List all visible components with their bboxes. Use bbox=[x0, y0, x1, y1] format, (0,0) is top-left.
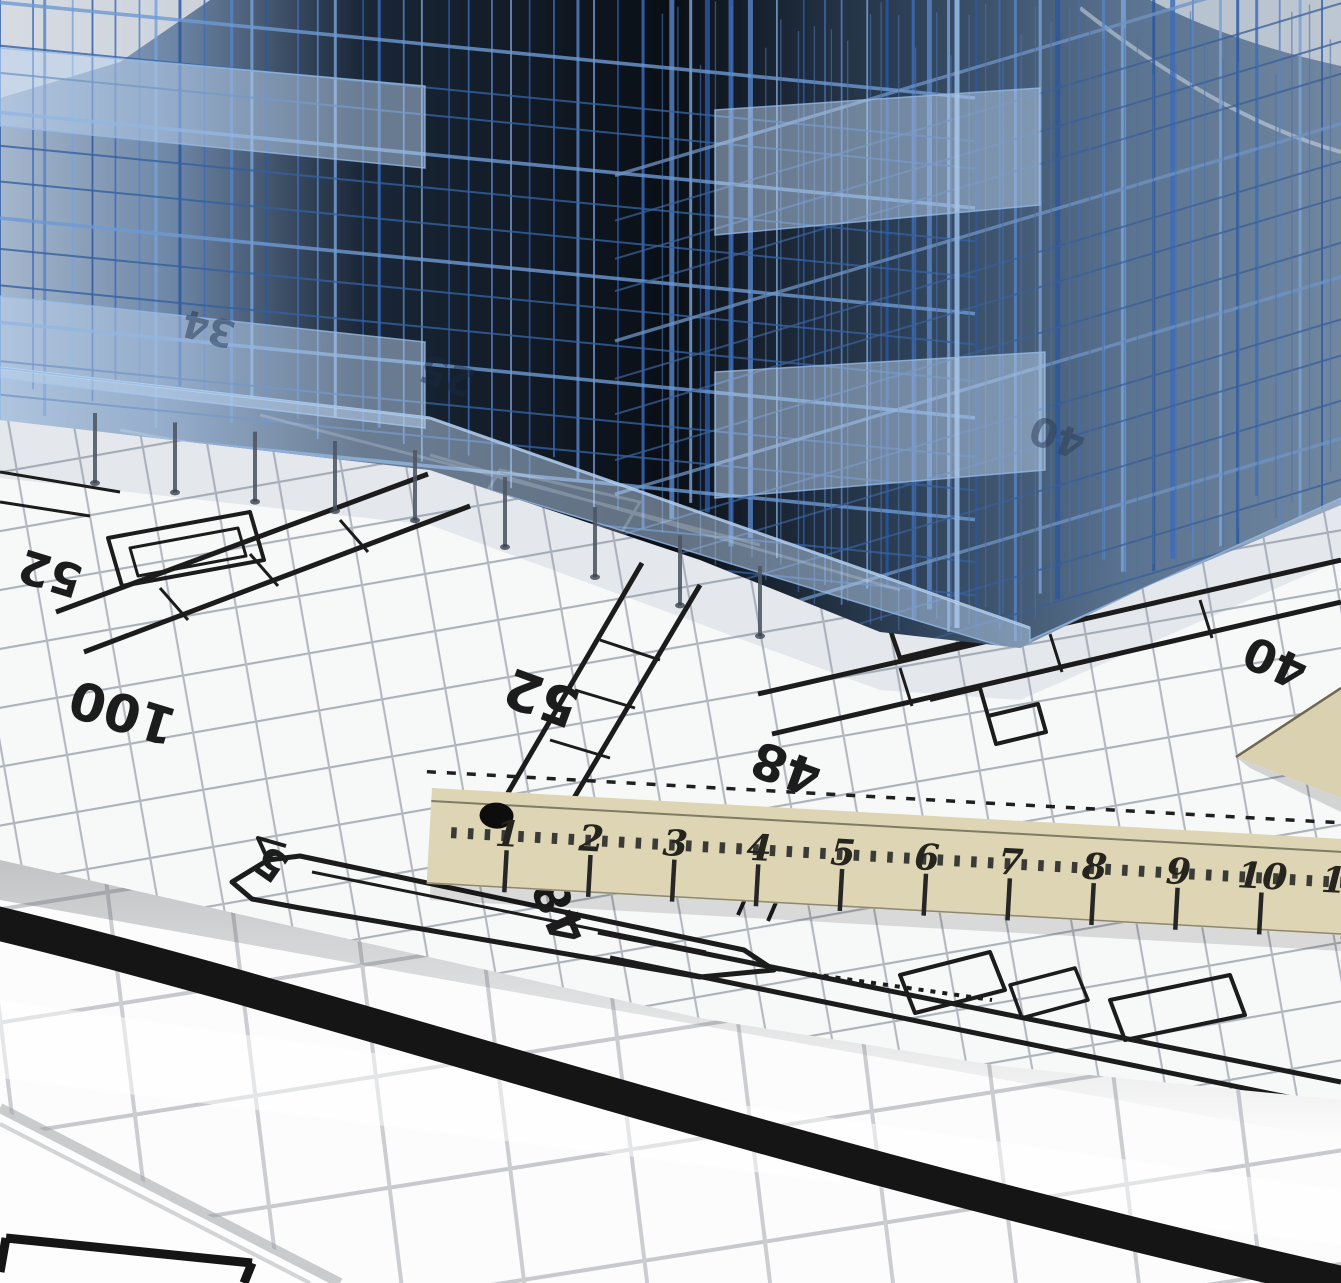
column-foot bbox=[590, 574, 600, 580]
column-foot bbox=[675, 602, 685, 608]
ruler-number: 2 bbox=[577, 817, 605, 860]
ruler-number: 9 bbox=[1165, 850, 1192, 893]
ruler-number: 6 bbox=[913, 836, 940, 879]
architectural-blueprint-scene: 52 100 52 48 40 5 48 bbox=[0, 0, 1341, 1283]
column-foot bbox=[755, 633, 765, 639]
column-foot bbox=[250, 499, 260, 505]
ruler-number: 5 bbox=[829, 831, 856, 874]
ruler-number: 11 bbox=[1320, 859, 1341, 904]
column-foot bbox=[410, 517, 420, 523]
column-foot bbox=[170, 489, 180, 495]
ruler-number: 4 bbox=[745, 827, 772, 870]
column-foot bbox=[90, 480, 100, 486]
ruler-number: 10 bbox=[1236, 854, 1288, 899]
ruler-number: 8 bbox=[1080, 845, 1108, 888]
ruler-number: 3 bbox=[662, 822, 689, 865]
column-foot bbox=[500, 544, 510, 550]
ruler-number: 1 bbox=[494, 813, 521, 856]
column-foot bbox=[330, 508, 340, 514]
ruler-number: 7 bbox=[997, 841, 1024, 884]
